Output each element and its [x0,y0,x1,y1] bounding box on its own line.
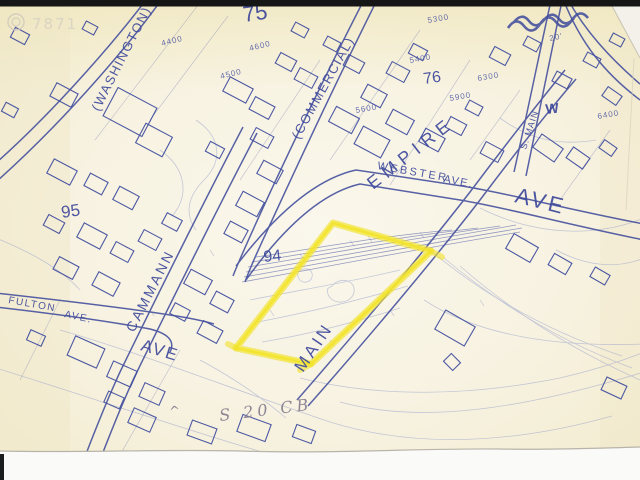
map-image: (WASHINGTON) (COMMERCIAL) CAMMANN AVE FU… [0,0,640,480]
block-76: 76 [422,69,442,88]
water-mark-w: W [545,100,561,117]
scanner-top-bar [0,0,640,7]
handwritten-caret: ^ [168,404,181,420]
watermark-number: 7871 [32,15,78,33]
scanner-left-sliver [0,454,4,480]
scanned-plat-map-photo: (WASHINGTON) (COMMERCIAL) CAMMANN AVE FU… [0,0,640,480]
block-95: 95 [60,201,81,222]
block-94: 94 [263,247,283,266]
